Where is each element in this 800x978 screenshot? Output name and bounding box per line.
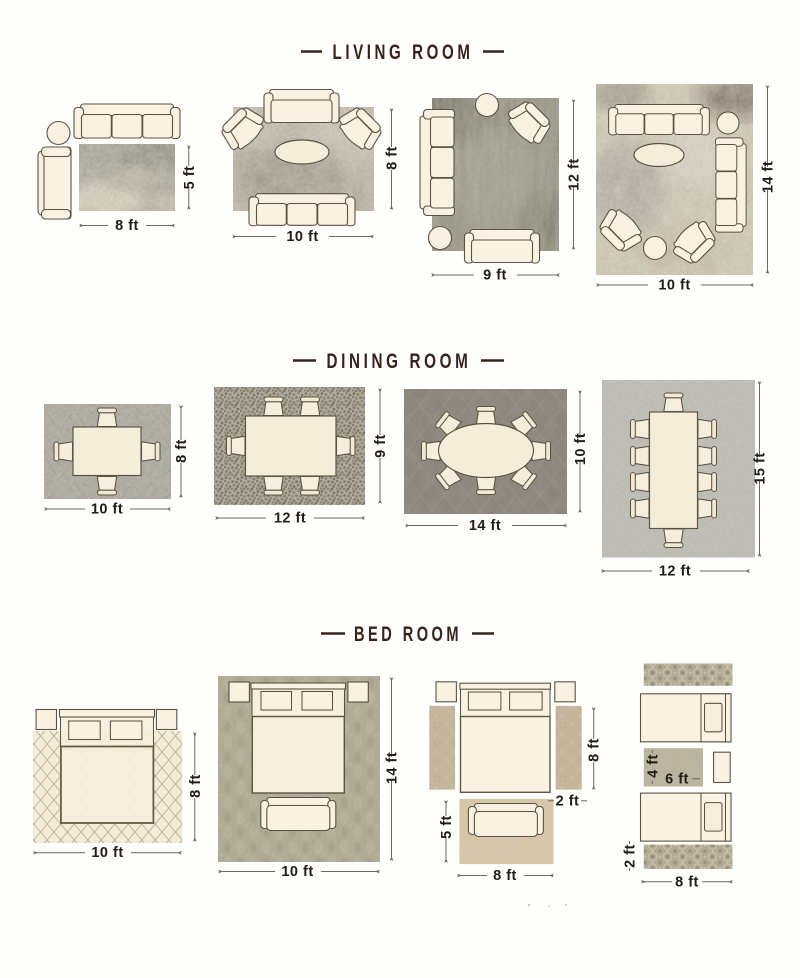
svg-text:2 ft: 2 ft — [556, 793, 580, 809]
svg-text:8 ft: 8 ft — [493, 868, 517, 884]
svg-text:14 ft: 14 ft — [385, 752, 401, 784]
svg-text:8 ft: 8 ft — [587, 738, 603, 762]
svg-text:10 ft: 10 ft — [281, 864, 313, 880]
svg-text:5 ft: 5 ft — [182, 166, 198, 190]
svg-text:10 ft: 10 ft — [658, 278, 690, 294]
svg-text:6 ft: 6 ft — [665, 771, 689, 787]
svg-text:12 ft: 12 ft — [274, 511, 306, 527]
svg-text:8 ft: 8 ft — [385, 146, 401, 170]
svg-text:10 ft: 10 ft — [573, 433, 589, 465]
svg-text:2 ft: 2 ft — [623, 844, 639, 868]
svg-text:LIVING ROOM: LIVING ROOM — [333, 41, 474, 64]
svg-text:10 ft: 10 ft — [91, 845, 123, 861]
svg-text:8 ft: 8 ft — [675, 874, 699, 890]
svg-text:15 ft: 15 ft — [753, 452, 769, 484]
svg-text:9 ft: 9 ft — [483, 268, 507, 284]
svg-text:5 ft: 5 ft — [439, 815, 455, 839]
svg-text:14 ft: 14 ft — [469, 518, 501, 534]
svg-text:BED ROOM: BED ROOM — [354, 623, 462, 646]
svg-text:12 ft: 12 ft — [659, 564, 691, 580]
svg-text:8 ft: 8 ft — [188, 774, 204, 798]
svg-text:DINING ROOM: DINING ROOM — [327, 350, 472, 373]
svg-text:10 ft: 10 ft — [286, 229, 318, 245]
svg-text:4 ft: 4 ft — [645, 754, 661, 778]
svg-text:9 ft: 9 ft — [373, 434, 389, 458]
svg-text:12 ft: 12 ft — [567, 158, 583, 190]
svg-text:8 ft: 8 ft — [115, 218, 139, 234]
svg-text:14 ft: 14 ft — [761, 161, 777, 193]
svg-text:10 ft: 10 ft — [91, 502, 123, 518]
svg-text:8 ft: 8 ft — [174, 439, 190, 463]
